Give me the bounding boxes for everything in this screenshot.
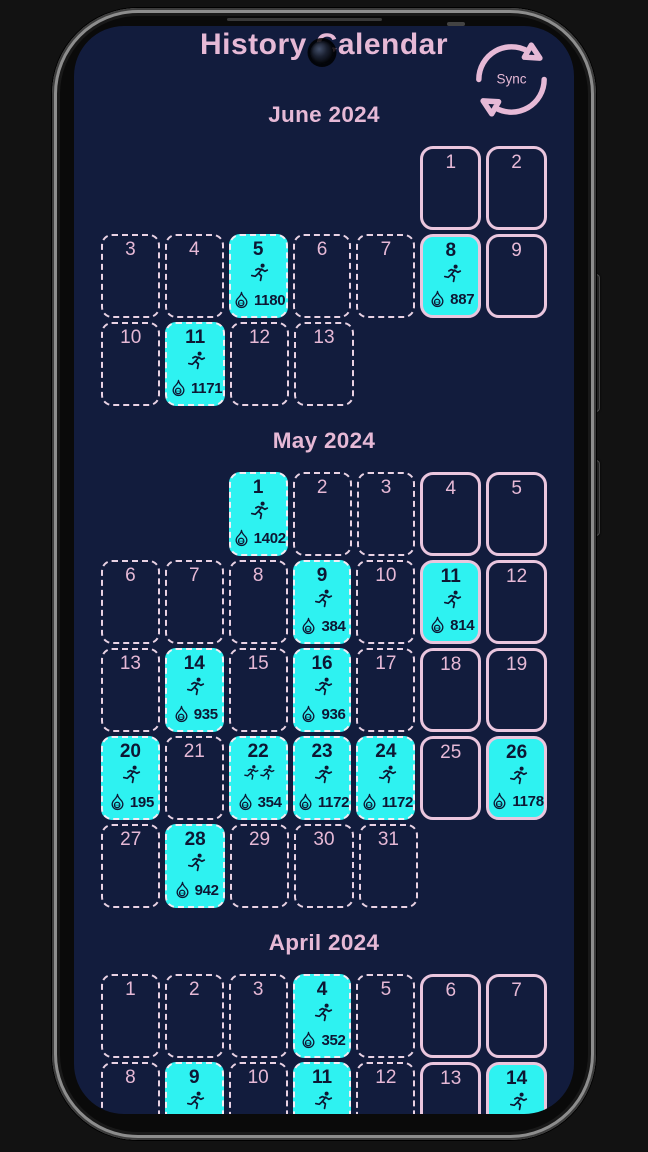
day-number: 7: [381, 239, 392, 261]
day-number: 22: [248, 741, 269, 763]
calories-value: 195: [130, 794, 154, 811]
calories-value: 352: [321, 1032, 345, 1049]
week-row: 345kcal1180678kcal8879: [74, 234, 574, 318]
day-cell[interactable]: 31: [359, 824, 418, 908]
activity-icons: [246, 499, 270, 523]
day-cell[interactable]: 4kcal352: [293, 974, 352, 1058]
day-cell[interactable]: 13: [294, 322, 353, 406]
svg-text:kcal: kcal: [115, 805, 120, 807]
day-cell[interactable]: 1kcal1402: [229, 472, 288, 556]
flame-kcal-icon: kcal: [231, 528, 252, 549]
day-number: 2: [317, 477, 328, 499]
day-number: 3: [253, 979, 264, 1001]
svg-text:kcal: kcal: [498, 804, 503, 806]
day-number: 11: [185, 327, 205, 349]
svg-text:kcal: kcal: [176, 391, 181, 393]
activity-icons: [183, 349, 207, 373]
day-cell[interactable]: 18: [420, 648, 481, 732]
day-number: 5: [253, 239, 264, 261]
runner-icon: [310, 675, 334, 699]
day-number: 12: [375, 1067, 396, 1089]
day-cell[interactable]: 3: [357, 472, 416, 556]
week-row: 1011kcal11711213: [74, 322, 574, 406]
activity-icons: [439, 588, 463, 612]
day-cell[interactable]: 5: [356, 974, 415, 1058]
day-cell[interactable]: 29: [230, 824, 289, 908]
day-number: 10: [375, 565, 396, 587]
month-section: April 20241234kcal352567891011121314: [74, 930, 574, 1114]
runner-icon: [310, 587, 334, 611]
day-cell[interactable]: 11: [293, 1062, 352, 1114]
day-cell[interactable]: 15: [229, 648, 288, 732]
activity-icons: [310, 675, 334, 699]
day-cell[interactable]: 2: [486, 146, 547, 230]
day-number: 7: [511, 980, 522, 1002]
flame-kcal-icon: kcal: [298, 704, 319, 725]
day-number: 27: [120, 829, 141, 851]
day-cell[interactable]: 16kcal936: [293, 648, 352, 732]
week-row: 12: [74, 146, 574, 230]
runner-icon: [256, 763, 276, 783]
runner-icon: [182, 675, 206, 699]
day-cell[interactable]: 8: [101, 1062, 160, 1114]
day-number: 24: [375, 741, 396, 763]
runner-icon: [310, 763, 334, 787]
day-cell[interactable]: 24kcal1172: [356, 736, 415, 820]
svg-text:kcal: kcal: [307, 717, 312, 719]
month-section: May 20241kcal140223456789kcal3841011kcal…: [74, 428, 574, 908]
day-cell[interactable]: 9: [165, 1062, 224, 1114]
day-number: 12: [506, 566, 527, 588]
day-cell[interactable]: 12: [230, 322, 289, 406]
day-number: 5: [381, 979, 392, 1001]
svg-text:kcal: kcal: [307, 1043, 312, 1045]
day-cell[interactable]: 10: [229, 1062, 288, 1114]
flame-kcal-icon: kcal: [298, 616, 319, 637]
flame-kcal-icon: kcal: [427, 615, 448, 636]
day-cell[interactable]: 11kcal1171: [165, 322, 224, 406]
calories-row: kcal1178: [489, 791, 543, 812]
svg-text:kcal: kcal: [180, 893, 185, 895]
runner-icon: [439, 588, 463, 612]
day-cell[interactable]: 1: [420, 146, 481, 230]
flame-kcal-icon: kcal: [107, 792, 128, 813]
calories-row: kcal942: [172, 880, 219, 901]
runner-icon: [183, 851, 207, 875]
day-cell[interactable]: 7: [486, 974, 547, 1058]
day-number: 4: [317, 979, 328, 1001]
day-number: 10: [120, 327, 141, 349]
day-cell[interactable]: 22kcal354: [229, 736, 288, 820]
day-cell[interactable]: 13: [101, 648, 160, 732]
day-number: 29: [249, 829, 270, 851]
day-cell[interactable]: 19: [486, 648, 547, 732]
svg-text:kcal: kcal: [303, 805, 308, 807]
day-cell[interactable]: 20kcal195: [101, 736, 160, 820]
day-number: 15: [248, 653, 269, 675]
day-number: 28: [185, 829, 206, 851]
day-cell[interactable]: 2: [165, 974, 224, 1058]
activity-icons: [242, 763, 274, 783]
calories-value: 887: [450, 291, 474, 308]
front-camera: [311, 41, 334, 64]
flame-kcal-icon: kcal: [235, 792, 256, 813]
calories-value: 1172: [318, 794, 349, 811]
day-cell[interactable]: 10: [101, 322, 160, 406]
calories-value: 1171: [191, 380, 222, 397]
runner-icon: [505, 764, 529, 788]
day-cell[interactable]: 12: [356, 1062, 415, 1114]
day-number: 23: [311, 741, 332, 763]
day-number: 9: [317, 565, 328, 587]
runner-icon: [374, 763, 398, 787]
day-number: 6: [317, 239, 328, 261]
app-screen: History Calendar Sync June 202412345kcal…: [74, 26, 574, 1114]
flame-kcal-icon: kcal: [171, 704, 192, 725]
activity-icons: [505, 1090, 529, 1114]
day-number: 11: [312, 1067, 332, 1089]
day-cell[interactable]: 13: [420, 1062, 481, 1114]
svg-text:kcal: kcal: [179, 717, 184, 719]
day-cell[interactable]: 8: [229, 560, 288, 644]
day-cell[interactable]: 21: [165, 736, 224, 820]
day-number: 19: [506, 654, 527, 676]
week-row: 1kcal14022345: [74, 472, 574, 556]
day-cell[interactable]: 2: [293, 472, 352, 556]
phone-frame: History Calendar Sync June 202412345kcal…: [52, 8, 596, 1140]
day-number: 2: [189, 979, 200, 1001]
runner-icon: [183, 349, 207, 373]
day-cell[interactable]: 4: [165, 234, 224, 318]
day-number: 7: [189, 565, 200, 587]
day-cell[interactable]: 17: [356, 648, 415, 732]
day-cell[interactable]: 1: [101, 974, 160, 1058]
day-cell[interactable]: 30: [294, 824, 353, 908]
calories-value: 935: [194, 706, 218, 723]
flame-kcal-icon: kcal: [298, 1030, 319, 1051]
svg-text:kcal: kcal: [367, 805, 372, 807]
calories-row: kcal384: [298, 616, 345, 637]
calories-value: 1172: [382, 794, 413, 811]
calories-row: kcal1402: [231, 528, 286, 549]
day-cell[interactable]: 12: [486, 560, 547, 644]
day-number: 1: [125, 979, 136, 1001]
day-number: 13: [440, 1068, 461, 1090]
day-number: 4: [446, 478, 457, 500]
day-number: 18: [440, 654, 461, 676]
activity-icons: [310, 763, 334, 787]
day-number: 17: [375, 653, 396, 675]
svg-text:kcal: kcal: [239, 541, 244, 543]
speaker-slit: [227, 18, 382, 21]
week-row: 20kcal1952122kcal35423kcal117224kcal1172…: [74, 736, 574, 820]
calories-value: 354: [258, 794, 282, 811]
day-number: 20: [120, 741, 141, 763]
week-row: 1234kcal352567: [74, 974, 574, 1058]
day-cell[interactable]: 6: [101, 560, 160, 644]
day-cell[interactable]: 7: [165, 560, 224, 644]
day-cell[interactable]: 3: [229, 974, 288, 1058]
calories-row: kcal814: [427, 615, 474, 636]
activity-icons: [118, 763, 142, 787]
day-cell[interactable]: 14: [486, 1062, 547, 1114]
activity-icons: [182, 1089, 206, 1113]
day-number: 13: [120, 653, 141, 675]
calories-value: 1180: [254, 292, 285, 309]
day-cell[interactable]: 10: [356, 560, 415, 644]
day-cell[interactable]: 5: [486, 472, 547, 556]
calories-row: kcal936: [298, 704, 345, 725]
day-cell[interactable]: 25: [420, 736, 481, 820]
day-cell[interactable]: 8kcal887: [420, 234, 481, 318]
months: June 202412345kcal1180678kcal88791011kca…: [74, 102, 574, 1114]
day-number: 9: [511, 240, 522, 262]
activity-icons: [183, 851, 207, 875]
calories-row: kcal195: [107, 792, 154, 813]
day-cell[interactable]: 14kcal935: [165, 648, 224, 732]
runner-icon: [310, 1001, 334, 1025]
month-section: June 202412345kcal1180678kcal88791011kca…: [74, 102, 574, 406]
runner-icon: [505, 1090, 529, 1114]
activity-icons: [310, 1001, 334, 1025]
day-number: 30: [313, 829, 334, 851]
day-cell[interactable]: 27: [101, 824, 160, 908]
flame-kcal-icon: kcal: [489, 791, 510, 812]
day-number: 1: [253, 477, 264, 499]
activity-icons: [439, 262, 463, 286]
day-cell[interactable]: 4: [420, 472, 481, 556]
day-number: 8: [125, 1067, 136, 1089]
day-number: 11: [441, 566, 461, 588]
day-number: 14: [184, 653, 205, 675]
day-number: 5: [511, 478, 522, 500]
calories-row: kcal1180: [231, 290, 285, 311]
svg-text:kcal: kcal: [307, 629, 312, 631]
flame-kcal-icon: kcal: [427, 289, 448, 310]
runner-icon: [182, 1089, 206, 1113]
runner-icon: [439, 262, 463, 286]
day-number: 21: [184, 741, 205, 763]
day-number: 3: [125, 239, 136, 261]
day-number: 31: [378, 829, 399, 851]
runner-icon: [310, 1089, 334, 1113]
calories-row: kcal887: [427, 289, 474, 310]
day-number: 25: [440, 742, 461, 764]
day-cell[interactable]: 5kcal1180: [229, 234, 288, 318]
svg-text:kcal: kcal: [239, 303, 244, 305]
calories-value: 936: [321, 706, 345, 723]
day-number: 3: [381, 477, 392, 499]
svg-text:kcal: kcal: [435, 302, 440, 304]
week-row: 2728kcal942293031: [74, 824, 574, 908]
svg-text:kcal: kcal: [435, 628, 440, 630]
week-row: 891011121314: [74, 1062, 574, 1114]
svg-text:kcal: kcal: [243, 805, 248, 807]
day-cell[interactable]: 3: [101, 234, 160, 318]
calories-value: 1402: [254, 530, 286, 547]
calories-value: 814: [450, 617, 474, 634]
month-title: May 2024: [74, 428, 574, 454]
day-number: 8: [253, 565, 264, 587]
day-number: 2: [511, 152, 522, 174]
day-number: 6: [445, 980, 456, 1002]
day-number: 12: [249, 327, 270, 349]
calories-row: kcal935: [171, 704, 218, 725]
calories-row: kcal352: [298, 1030, 345, 1051]
calories-value: 384: [321, 618, 345, 635]
day-number: 26: [506, 742, 527, 764]
day-cell[interactable]: 6: [293, 234, 352, 318]
flame-kcal-icon: kcal: [172, 880, 193, 901]
sync-label: Sync: [496, 72, 526, 87]
day-number: 16: [311, 653, 332, 675]
day-cell[interactable]: 6: [420, 974, 481, 1058]
calories-row: kcal1171: [168, 378, 222, 399]
day-number: 13: [313, 327, 334, 349]
calories-value: 1178: [512, 793, 543, 810]
day-cell[interactable]: 23kcal1172: [293, 736, 352, 820]
flame-kcal-icon: kcal: [359, 792, 380, 813]
day-number: 8: [445, 240, 456, 262]
runner-icon: [246, 261, 270, 285]
day-number: 9: [189, 1067, 200, 1089]
day-number: 14: [506, 1068, 527, 1090]
day-number: 6: [125, 565, 136, 587]
day-cell[interactable]: 26kcal1178: [486, 736, 547, 820]
day-cell[interactable]: 9kcal384: [293, 560, 352, 644]
day-cell[interactable]: 9: [486, 234, 547, 318]
runner-icon: [118, 763, 142, 787]
day-cell[interactable]: 28kcal942: [165, 824, 224, 908]
activity-icons: [505, 764, 529, 788]
day-number: 1: [445, 152, 456, 174]
day-cell[interactable]: 7: [356, 234, 415, 318]
calories-value: 942: [195, 882, 219, 899]
flame-kcal-icon: kcal: [231, 290, 252, 311]
day-number: 4: [189, 239, 200, 261]
week-row: 1314kcal9351516kcal936171819: [74, 648, 574, 732]
sync-button[interactable]: Sync: [462, 28, 561, 127]
activity-icons: [374, 763, 398, 787]
calories-row: kcal1172: [359, 792, 413, 813]
activity-icons: [310, 587, 334, 611]
screenshot-background: History Calendar Sync June 202412345kcal…: [0, 0, 648, 1152]
calories-row: kcal1172: [295, 792, 349, 813]
calories-row: kcal354: [235, 792, 282, 813]
flame-kcal-icon: kcal: [168, 378, 189, 399]
activity-icons: [182, 675, 206, 699]
runner-icon: [246, 499, 270, 523]
day-cell[interactable]: 11kcal814: [420, 560, 481, 644]
activity-icons: [310, 1089, 334, 1113]
activity-icons: [246, 261, 270, 285]
month-title: April 2024: [74, 930, 574, 956]
day-number: 10: [248, 1067, 269, 1089]
week-row: 6789kcal3841011kcal81412: [74, 560, 574, 644]
flame-kcal-icon: kcal: [295, 792, 316, 813]
